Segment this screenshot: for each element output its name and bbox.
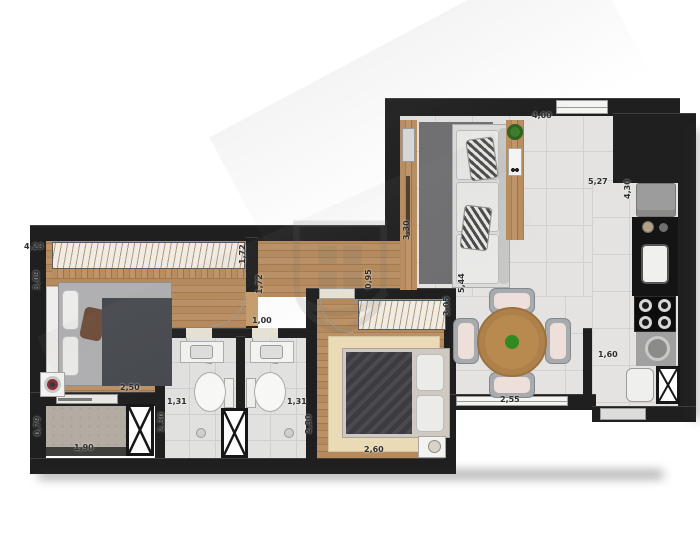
dimension-label: 3,30 — [403, 220, 411, 240]
dimension-label: 1,31 — [287, 398, 307, 406]
dimension-label: 3,05 — [443, 296, 451, 316]
dimension-label: 0,79 — [34, 416, 42, 436]
dimension-label: 2,50 — [120, 384, 140, 392]
dimension-label: 1,72 — [256, 274, 264, 294]
dimension-label: 4,30 — [624, 179, 632, 199]
dimension-label: 2,55 — [500, 396, 520, 404]
dimension-label: 0,95 — [365, 269, 373, 289]
dimension-label: 1,90 — [74, 444, 94, 452]
dimension-label: 1,00 — [252, 317, 272, 325]
dimension-label: 2,30 — [158, 412, 166, 432]
dimension-label: 2,30 — [305, 414, 313, 434]
dimension-label: 1,31 — [167, 398, 187, 406]
dimension-label: 5,27 — [588, 178, 608, 186]
dimension-label: 2,60 — [364, 446, 384, 454]
dimension-label: 4,00 — [532, 112, 552, 120]
dimension-label: 1,72 — [239, 244, 247, 264]
dimension-labels-layer: 4,233,091,721,721,002,500,791,901,312,30… — [0, 0, 700, 556]
dimension-label: 4,23 — [24, 243, 44, 251]
dimension-label: 3,09 — [33, 270, 41, 290]
dimension-label: 1,60 — [598, 351, 618, 359]
floor-plan: 4,233,091,721,721,002,500,791,901,312,30… — [0, 0, 700, 556]
dimension-label: 5,44 — [458, 273, 466, 293]
